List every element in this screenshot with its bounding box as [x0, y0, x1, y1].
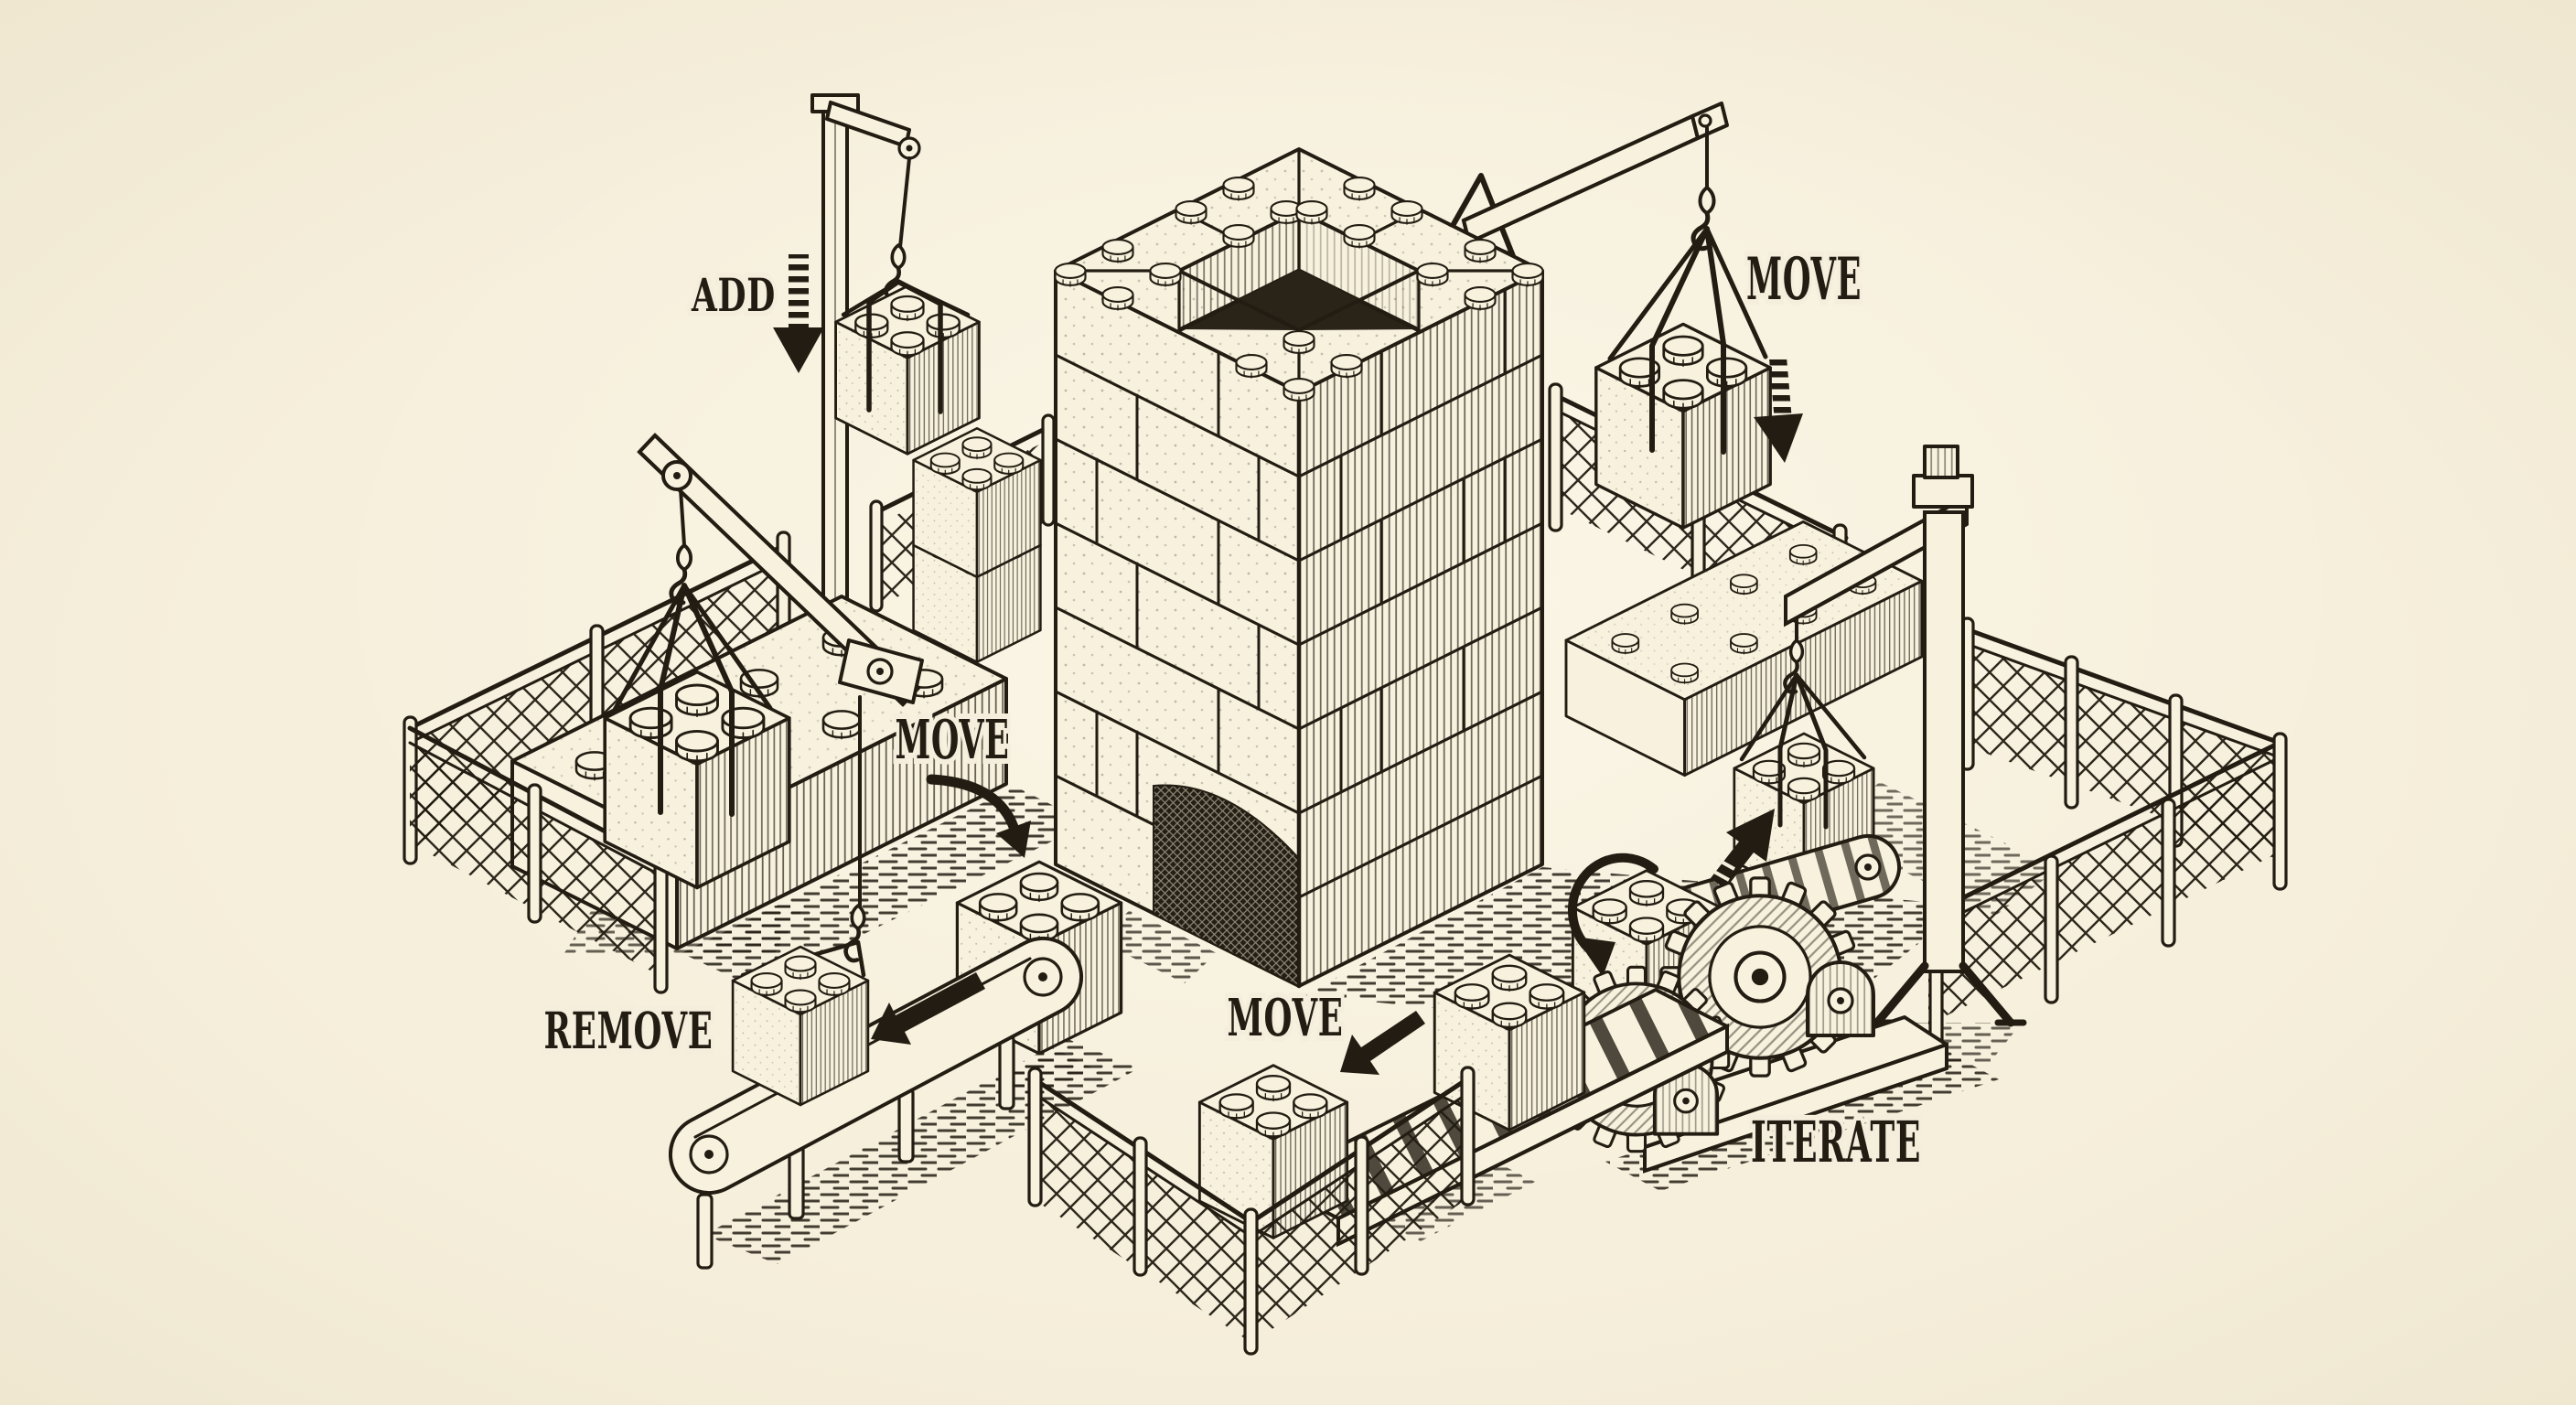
label-remove: REMOVE	[544, 1001, 714, 1060]
engraving-illustration: MOVE ITERATE	[0, 0, 2576, 1405]
brick-tower	[1056, 149, 1543, 986]
label-iterate: ITERATE	[1751, 1109, 1921, 1175]
move-lower-arrow-icon	[1340, 1011, 1425, 1075]
brick-on-conveyor	[733, 947, 868, 1105]
label-move-lower: MOVE	[1228, 988, 1344, 1048]
brick-stack	[914, 428, 1041, 661]
hanging-brick-left	[605, 672, 789, 888]
hanging-brick-move	[1596, 229, 1770, 528]
boom-crane-top-right	[1450, 103, 1727, 256]
label-move-center: MOVE	[896, 708, 1010, 771]
hanging-brick-add	[836, 286, 980, 454]
illustration-canvas: MOVE ITERATE	[0, 0, 2576, 1405]
add-arrow-icon	[773, 254, 824, 373]
label-add: ADD	[691, 268, 776, 322]
label-move-upper-right: MOVE	[1746, 245, 1862, 314]
